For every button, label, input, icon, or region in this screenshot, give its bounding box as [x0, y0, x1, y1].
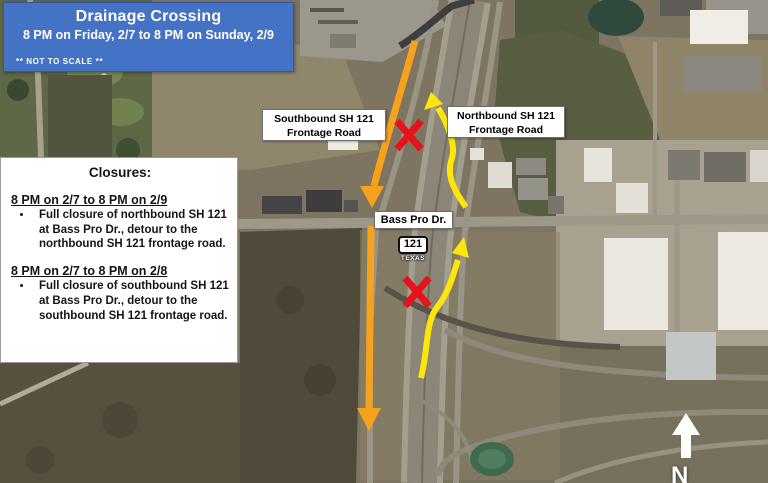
closure-detail-list-2: Full closure of southbound SH 121 at Bas… — [11, 279, 229, 323]
sh-121-route-shield: 121 TEXAS — [398, 236, 428, 262]
closures-title: Closures: — [11, 165, 229, 180]
southbound-frontage-line2: Frontage Road — [263, 126, 385, 140]
bass-pro-dr-label: Bass Pro Dr. — [374, 211, 453, 229]
closure-period-1: 8 PM on 2/7 to 8 PM on 2/9 — [11, 193, 229, 207]
northbound-frontage-line1: Northbound SH 121 — [448, 109, 564, 123]
compass-n-label: N — [671, 464, 714, 483]
closure-period-2: 8 PM on 2/7 to 8 PM on 2/8 — [11, 264, 229, 278]
drainage-crossing-closure-map: Drainage Crossing 8 PM on Friday, 2/7 to… — [0, 0, 768, 483]
closure-detail-1: Full closure of northbound SH 121 at Bas… — [33, 208, 229, 252]
southbound-frontage-label: Southbound SH 121 Frontage Road — [262, 109, 386, 141]
route-number: 121 — [398, 236, 428, 254]
closures-box: Closures: 8 PM on 2/7 to 8 PM on 2/9 Ful… — [0, 157, 238, 363]
not-to-scale-note: ** NOT TO SCALE ** — [16, 57, 103, 66]
closure-detail-list-1: Full closure of northbound SH 121 at Bas… — [11, 208, 229, 252]
north-compass: N — [662, 411, 714, 483]
southbound-frontage-line1: Southbound SH 121 — [263, 112, 385, 126]
north-arrow-icon — [662, 411, 710, 459]
northbound-frontage-line2: Frontage Road — [448, 123, 564, 137]
header-callout: Drainage Crossing 8 PM on Friday, 2/7 to… — [3, 2, 294, 72]
page-title: Drainage Crossing — [4, 8, 293, 26]
route-state: TEXAS — [398, 255, 428, 262]
northbound-frontage-label: Northbound SH 121 Frontage Road — [447, 106, 565, 138]
closure-detail-2: Full closure of southbound SH 121 at Bas… — [33, 279, 229, 323]
closure-dates: 8 PM on Friday, 2/7 to 8 PM on Sunday, 2… — [4, 28, 293, 42]
